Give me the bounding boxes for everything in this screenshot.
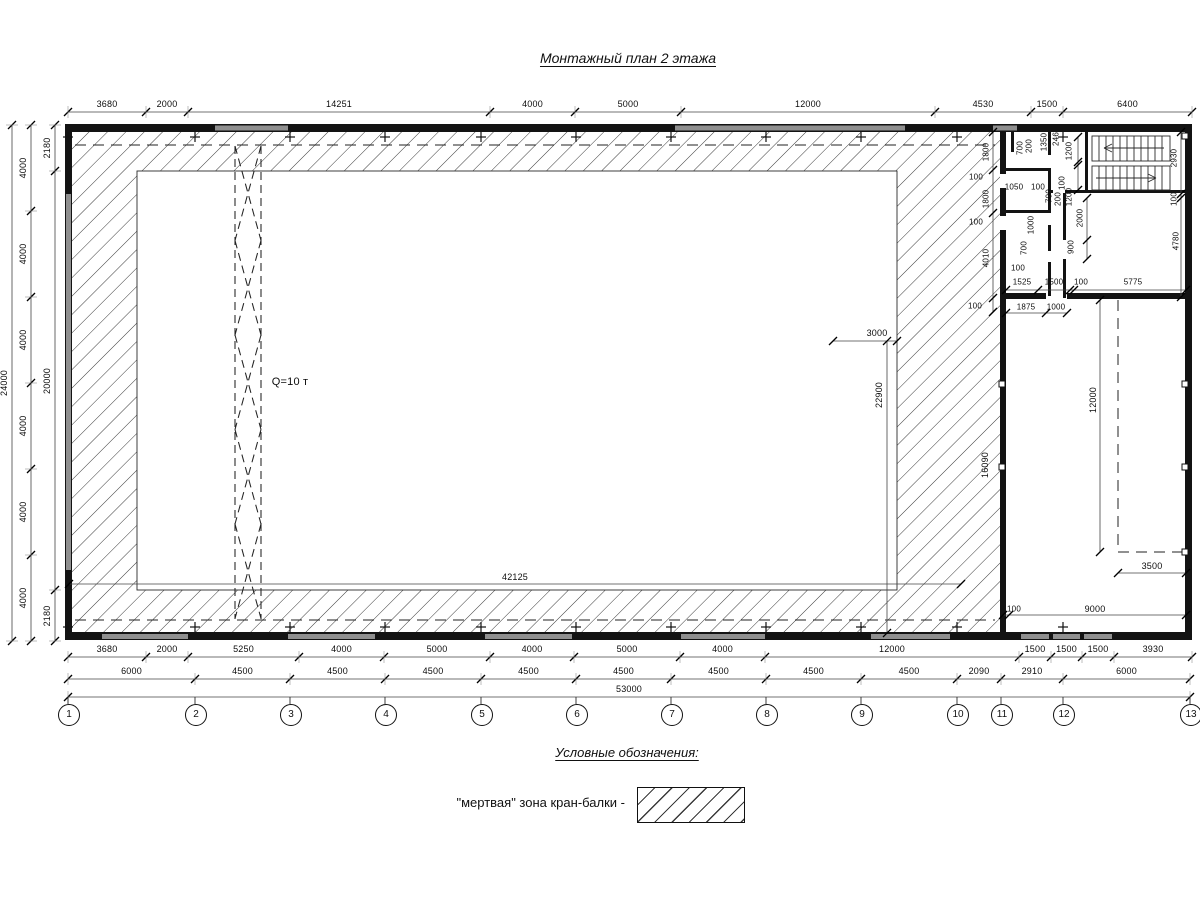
door-opening: [1000, 216, 1006, 230]
window: [215, 126, 288, 131]
partition: [1048, 262, 1051, 296]
stair-wall: [1085, 132, 1088, 190]
legend-heading-text: Условные обозначения:: [555, 745, 699, 760]
window: [66, 194, 71, 570]
window: [675, 126, 905, 131]
legend-item-label: "мертвая" зона кран-балки -: [300, 795, 625, 810]
wall-node: [999, 464, 1005, 470]
wall-node: [1182, 549, 1188, 555]
partition: [1051, 190, 1053, 193]
window: [1084, 634, 1112, 639]
wall-node: [1182, 464, 1188, 470]
dead-zone-hatch-swatch: [637, 787, 745, 823]
partition: [1006, 210, 1050, 213]
partition: [1006, 168, 1050, 171]
wall-node: [1182, 133, 1188, 139]
door-opening: [1000, 174, 1006, 188]
window: [288, 634, 375, 639]
floor-plan: [0, 0, 1200, 900]
window: [102, 634, 188, 639]
dead-zone-hatch: [72, 132, 1000, 633]
partition: [1011, 132, 1014, 152]
drawing-sheet: Монтажный план 2 этажа: [0, 0, 1200, 900]
legend-heading: Условные обозначения:: [127, 745, 1127, 760]
clear-zone-outline: [137, 171, 897, 590]
window: [485, 634, 572, 639]
partition: [1063, 259, 1066, 298]
window: [681, 634, 765, 639]
wall-node: [1182, 381, 1188, 387]
partition: [1048, 132, 1051, 155]
wall-node: [999, 381, 1005, 387]
partition: [1000, 293, 1046, 299]
window: [1053, 634, 1080, 639]
partition: [1063, 193, 1066, 240]
stair-flight-upper: [1092, 136, 1170, 161]
partition: [1067, 293, 1185, 299]
window: [1021, 634, 1049, 639]
partition: [1048, 225, 1051, 251]
partition: [1048, 168, 1051, 213]
